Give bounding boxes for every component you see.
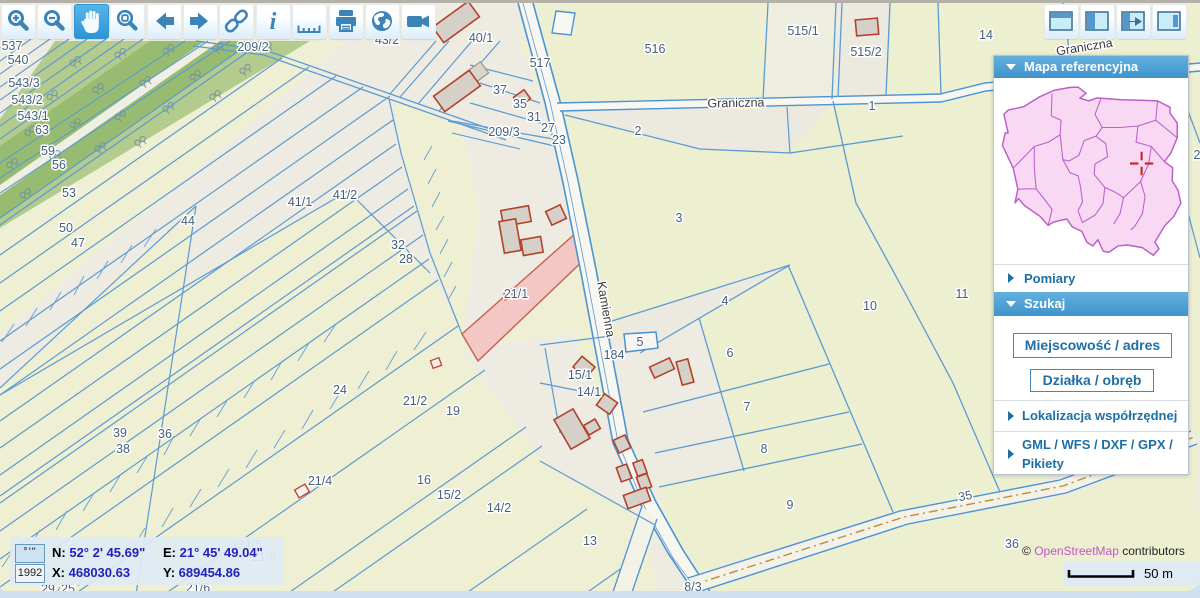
svg-text:8: 8 [761,442,768,456]
svg-text:56: 56 [52,158,66,172]
svg-text:36: 36 [1005,537,1019,551]
svg-text:36: 36 [158,427,172,441]
svg-text:39: 39 [113,426,127,440]
svg-text:16: 16 [417,473,431,487]
svg-text:40/1: 40/1 [469,31,493,45]
svg-text:21/4: 21/4 [308,474,332,488]
svg-text:14/1: 14/1 [577,385,601,399]
svg-text:41/1: 41/1 [288,195,312,209]
svg-text:i: i [270,9,277,35]
svg-text:7: 7 [744,400,751,414]
svg-text:37: 37 [493,83,507,97]
svg-text:21/1: 21/1 [504,287,528,301]
svg-text:537: 537 [2,39,23,53]
svg-text:59: 59 [41,144,55,158]
svg-text:21/2: 21/2 [403,394,427,408]
svg-text:38: 38 [116,442,130,456]
svg-text:543/2: 543/2 [11,93,42,107]
svg-text:63: 63 [35,123,49,137]
svg-text:13: 13 [583,534,597,548]
svg-text:209/2: 209/2 [237,40,268,54]
svg-text:23: 23 [552,133,566,147]
svg-text:2: 2 [1194,148,1200,162]
svg-text:53: 53 [62,186,76,200]
svg-text:184: 184 [604,348,625,362]
svg-text:14: 14 [979,28,993,42]
svg-text:41/2: 41/2 [333,188,357,202]
svg-text:1: 1 [869,99,876,113]
svg-text:28: 28 [399,252,413,266]
svg-text:15/1: 15/1 [568,368,592,382]
svg-text:35: 35 [513,97,527,111]
svg-text:19: 19 [446,404,460,418]
svg-text:209/3: 209/3 [488,125,519,139]
svg-text:31: 31 [527,110,541,124]
svg-text:6: 6 [727,346,734,360]
svg-text:24: 24 [333,383,347,397]
svg-text:515/1: 515/1 [787,24,818,38]
svg-text:14/2: 14/2 [487,501,511,515]
svg-text:517: 517 [530,56,551,70]
svg-text:50 m: 50 m [1144,566,1173,581]
svg-text:2: 2 [635,124,642,138]
svg-text:15/2: 15/2 [437,488,461,502]
svg-text:47: 47 [71,236,85,250]
svg-text:3: 3 [676,211,683,225]
svg-text:4: 4 [722,294,729,308]
svg-text:543/3: 543/3 [8,76,39,90]
svg-text:11: 11 [956,287,969,301]
svg-text:Graniczna: Graniczna [707,96,764,111]
svg-text:540: 540 [8,53,29,67]
svg-text:44: 44 [181,214,195,228]
svg-text:50: 50 [59,221,73,235]
svg-text:8/3: 8/3 [684,580,701,591]
svg-text:515/2: 515/2 [850,45,881,59]
svg-text:516: 516 [645,42,666,56]
svg-text:5: 5 [637,335,644,349]
svg-text:32: 32 [391,238,405,252]
svg-text:35: 35 [957,488,973,504]
svg-text:9: 9 [787,498,794,512]
svg-text:10: 10 [863,299,877,313]
svg-text:543/1: 543/1 [17,109,48,123]
